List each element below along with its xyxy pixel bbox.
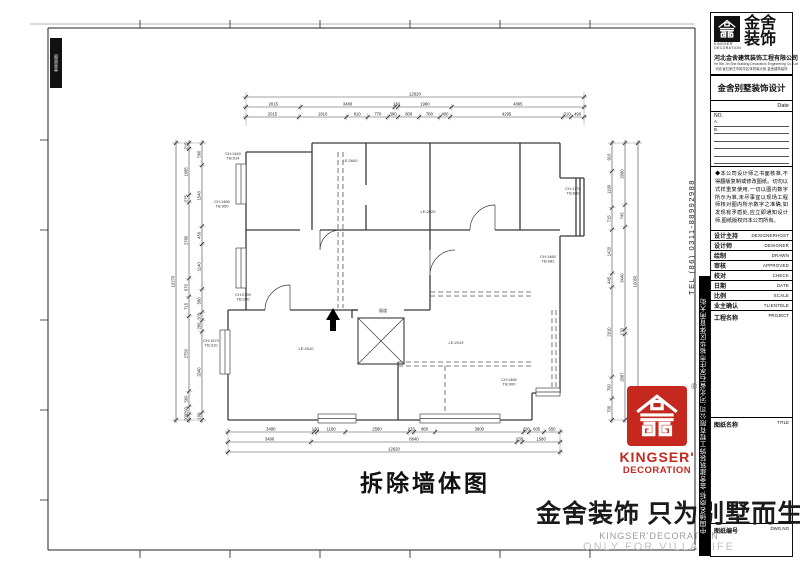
svg-text:TB:914: TB:914 bbox=[227, 156, 241, 161]
svg-text:275: 275 bbox=[183, 195, 188, 203]
no-section: NO. A.B. bbox=[711, 112, 792, 164]
svg-text:4895: 4895 bbox=[513, 101, 523, 106]
svg-text:1190: 1190 bbox=[606, 184, 611, 194]
svg-text:TB:950: TB:950 bbox=[216, 204, 230, 209]
svg-text:560: 560 bbox=[183, 395, 188, 403]
svg-text:2780: 2780 bbox=[183, 235, 188, 245]
title-block-row: 设计主持DESIGNERHOST bbox=[711, 230, 792, 240]
svg-text:910: 910 bbox=[606, 153, 611, 161]
svg-text:2580: 2580 bbox=[372, 426, 382, 431]
svg-text:130: 130 bbox=[393, 101, 401, 106]
svg-text:2910: 2910 bbox=[606, 327, 611, 337]
svg-text:TB:900: TB:900 bbox=[503, 382, 517, 387]
svg-text:390: 390 bbox=[390, 111, 398, 116]
svg-text:12620: 12620 bbox=[388, 446, 400, 451]
svg-text:2750: 2750 bbox=[183, 348, 188, 358]
svg-text:170: 170 bbox=[619, 328, 624, 336]
svg-text:3600: 3600 bbox=[475, 426, 485, 431]
svg-text:215: 215 bbox=[408, 426, 416, 431]
svg-text:1420: 1420 bbox=[606, 246, 611, 256]
svg-text:490: 490 bbox=[574, 111, 582, 116]
svg-text:650: 650 bbox=[549, 426, 557, 431]
svg-text:310: 310 bbox=[564, 111, 572, 116]
plan-title: 拆除墙体图 bbox=[330, 464, 520, 498]
date-row: Date bbox=[711, 101, 792, 112]
corner-stamp-text: 金舍装饰 bbox=[53, 54, 59, 72]
svg-text:1980: 1980 bbox=[420, 101, 430, 106]
svg-text:2015: 2015 bbox=[269, 101, 279, 106]
copyright-notice: ◆本公司设计师之书面核准,不得翻版复制或修改图纸。切勿以式样重复使用,一切以图内… bbox=[711, 167, 792, 230]
svg-text:TB:600: TB:600 bbox=[567, 191, 581, 196]
svg-text:2040: 2040 bbox=[196, 367, 201, 377]
svg-text:280: 280 bbox=[196, 322, 201, 330]
signature-rows: 设计主持DESIGNERHOST设计师DESIGNER绘制DRAWN审核APPR… bbox=[711, 230, 792, 310]
svg-text:715: 715 bbox=[183, 302, 188, 310]
svg-text:445: 445 bbox=[606, 276, 611, 284]
title-block-row: 审核APPROVED bbox=[711, 260, 792, 270]
svg-text:3490: 3490 bbox=[266, 426, 276, 431]
svg-text:780: 780 bbox=[426, 111, 434, 116]
svg-text:3440: 3440 bbox=[619, 273, 624, 283]
svg-text:810: 810 bbox=[354, 111, 362, 116]
svg-text:130: 130 bbox=[312, 426, 320, 431]
svg-text:2080: 2080 bbox=[619, 169, 624, 179]
svg-text:400: 400 bbox=[441, 111, 449, 116]
svg-text:烟道: 烟道 bbox=[379, 307, 387, 313]
svg-text:3490: 3490 bbox=[265, 436, 275, 441]
no-list-line: B. bbox=[714, 127, 789, 135]
svg-text:1160: 1160 bbox=[327, 426, 337, 431]
svg-text:450: 450 bbox=[196, 231, 201, 239]
stamp-brand: KINGSER' bbox=[616, 449, 698, 465]
kingser-logo-icon-small bbox=[714, 16, 740, 42]
company-address: 河北省石家庄市裕华区体育南大街 金舍建筑装饰 bbox=[714, 67, 789, 71]
svg-text:8640: 8640 bbox=[409, 436, 419, 441]
kingser-logo-icon: ® bbox=[627, 386, 687, 446]
address-bar: 中国驰名商标·金舍建筑装饰工程有限公司·河北省石家庄市裕华区体育南大街 bbox=[699, 276, 710, 556]
svg-text:1685: 1685 bbox=[183, 167, 188, 177]
svg-text:4295: 4295 bbox=[502, 111, 512, 116]
stamp-brand2: DECORATION bbox=[616, 465, 698, 476]
title-block-row: 设计师DESIGNER bbox=[711, 240, 792, 250]
title-block-big-row: 工程名称PROJECT bbox=[711, 310, 792, 418]
door-arcs bbox=[265, 205, 495, 310]
walls bbox=[228, 143, 584, 420]
registered-mark: ® bbox=[691, 382, 697, 391]
title-block: KINGSER' DECORATION 金舍 装饰 河北金舍建筑装饰工程有限公司… bbox=[710, 12, 793, 557]
title-block-row: 业主确认TLIENTELE bbox=[711, 300, 792, 310]
svg-text:1810: 1810 bbox=[318, 111, 328, 116]
no-list-line bbox=[714, 157, 789, 165]
svg-text:700: 700 bbox=[606, 405, 611, 413]
svg-text:200: 200 bbox=[183, 413, 188, 421]
title-block-row: 日期DATE bbox=[711, 280, 792, 290]
svg-text:TB:200: TB:200 bbox=[237, 297, 251, 302]
series-title: 金舍别墅装饰设计 bbox=[711, 76, 792, 100]
drawing-sheet: 1262020153480130198048952015181081077039… bbox=[0, 0, 800, 565]
logo-cn2: 装饰 bbox=[744, 32, 776, 48]
svg-text:1540: 1540 bbox=[196, 190, 201, 200]
shaft bbox=[358, 318, 404, 364]
svg-text:205: 205 bbox=[196, 312, 201, 320]
svg-text:LE:2019: LE:2019 bbox=[449, 340, 465, 345]
title-block-header: KINGSER' DECORATION 金舍 装饰 河北金舍建筑装饰工程有限公司… bbox=[711, 13, 792, 71]
svg-text:290: 290 bbox=[183, 406, 188, 414]
svg-text:745: 745 bbox=[619, 212, 624, 220]
svg-text:215: 215 bbox=[183, 142, 188, 150]
svg-text:2887: 2887 bbox=[619, 372, 624, 382]
entry-arrow-icon bbox=[326, 308, 340, 331]
svg-text:190: 190 bbox=[196, 412, 201, 420]
phone-strip: TEL (86) 0311-88992988 bbox=[687, 55, 696, 295]
kingser-stamp: ® KINGSER' DECORATION bbox=[616, 386, 698, 476]
svg-text:LE:2020: LE:2020 bbox=[421, 209, 437, 214]
date-label: Date bbox=[777, 103, 789, 109]
corner-stamp: 金舍装饰 bbox=[50, 38, 62, 88]
svg-text:700: 700 bbox=[606, 383, 611, 391]
company-name: 河北金舍建筑装饰工程有限公司 bbox=[714, 53, 789, 62]
no-list-line: A. bbox=[714, 119, 789, 127]
title-block-big-row: 图纸编号DWG.NO bbox=[711, 523, 792, 556]
svg-text:1140: 1140 bbox=[196, 262, 201, 272]
project-rows: 工程名称PROJECT图纸名称TITLE图纸编号DWG.NO bbox=[711, 310, 792, 556]
svg-text:800: 800 bbox=[405, 111, 413, 116]
svg-text:LE:2610: LE:2610 bbox=[299, 346, 315, 351]
svg-text:2015: 2015 bbox=[268, 111, 278, 116]
svg-text:580: 580 bbox=[196, 297, 201, 305]
svg-text:770: 770 bbox=[374, 111, 382, 116]
svg-text:10270: 10270 bbox=[170, 275, 175, 287]
svg-text:TB:982: TB:982 bbox=[542, 259, 556, 264]
title-block-row: 绘制DRAWN bbox=[711, 250, 792, 260]
no-list-line bbox=[714, 134, 789, 142]
demolition-dashed-walls bbox=[338, 152, 556, 414]
svg-text:715: 715 bbox=[606, 215, 611, 223]
logo-en2: DECORATION bbox=[714, 46, 741, 50]
svg-text:1580: 1580 bbox=[537, 436, 547, 441]
svg-text:860: 860 bbox=[421, 426, 429, 431]
address-bar-text: 中国驰名商标·金舍建筑装饰工程有限公司·河北省石家庄市裕华区体育南大街 bbox=[700, 298, 710, 534]
svg-text:12620: 12620 bbox=[409, 91, 421, 96]
svg-text:235: 235 bbox=[516, 436, 524, 441]
plan-labels: CH:1440TB:914LE:2600LE:2020CH:1770TB:600… bbox=[203, 151, 582, 387]
svg-text:10050: 10050 bbox=[632, 275, 637, 287]
svg-text:670: 670 bbox=[183, 283, 188, 291]
svg-text:3480: 3480 bbox=[343, 101, 353, 106]
title-block-row: 校对CHECK bbox=[711, 270, 792, 280]
svg-text:230: 230 bbox=[523, 426, 531, 431]
svg-text:605: 605 bbox=[533, 426, 541, 431]
svg-text:LE:2600: LE:2600 bbox=[343, 158, 359, 163]
svg-text:560: 560 bbox=[196, 150, 201, 158]
title-block-row: 比例SCALE bbox=[711, 290, 792, 300]
no-list-line bbox=[714, 149, 789, 157]
no-list-line bbox=[714, 142, 789, 150]
title-block-big-row: 图纸名称TITLE bbox=[711, 417, 792, 523]
logo-cn1: 金舍 bbox=[744, 16, 776, 32]
svg-text:TB:310: TB:310 bbox=[205, 343, 219, 348]
